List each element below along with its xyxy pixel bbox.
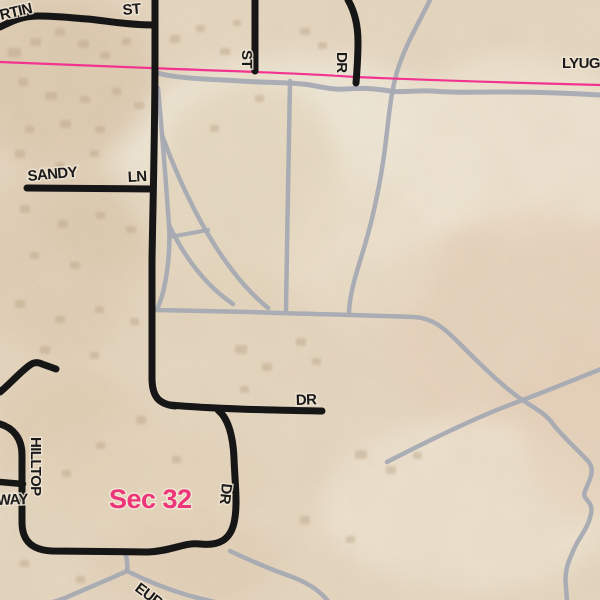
building [300, 516, 310, 524]
road-label-martin-st: ST [122, 0, 142, 19]
building [136, 416, 146, 424]
building [296, 338, 306, 346]
building [346, 536, 355, 543]
building [30, 252, 39, 259]
building [45, 92, 57, 100]
building [240, 386, 249, 393]
building [55, 28, 65, 36]
building [30, 38, 41, 46]
road-label-sandy-ln: LN [127, 168, 147, 186]
building [220, 48, 230, 55]
building [172, 456, 181, 463]
building [112, 88, 121, 95]
building [355, 450, 367, 459]
building [386, 466, 396, 474]
building [78, 40, 89, 48]
building [15, 150, 25, 158]
building [233, 20, 241, 26]
building [15, 300, 25, 308]
building [20, 560, 29, 567]
building [80, 96, 90, 103]
building [60, 120, 71, 128]
building [413, 452, 422, 459]
building [95, 306, 104, 313]
sandy-ln-road [27, 188, 152, 189]
road-label-dr-south: DR [216, 483, 235, 506]
road-label-st: ST [238, 50, 255, 68]
building [130, 318, 139, 325]
building [76, 576, 85, 583]
building [196, 25, 205, 32]
building [96, 442, 105, 449]
building [122, 38, 131, 45]
building [70, 262, 80, 269]
road-label-dr-east: DR [296, 391, 318, 409]
building [8, 48, 21, 57]
building [55, 316, 65, 323]
building [18, 78, 28, 86]
aerial-map-canvas: RTINSTSTDRLYUGOSANDYLNDRHILLTOPWAYDREURE… [0, 0, 600, 600]
building [170, 35, 180, 43]
building [58, 220, 68, 228]
building [235, 345, 247, 354]
building [255, 95, 264, 102]
building [318, 42, 327, 49]
road-label-dr-north: DR [333, 52, 350, 73]
building [312, 358, 321, 365]
building [300, 28, 310, 35]
road-label-lyugo: LYUGO [562, 55, 600, 72]
building [62, 470, 71, 477]
road-label-way: WAY [0, 491, 29, 509]
building [20, 205, 30, 213]
building [126, 226, 136, 233]
building [25, 126, 34, 133]
building [100, 52, 110, 59]
building [262, 363, 272, 371]
building [134, 102, 144, 109]
way-stub-road [0, 482, 23, 484]
road-label-hilltop: HILLTOP [27, 437, 44, 496]
building [96, 212, 105, 219]
building [90, 352, 99, 359]
building [210, 125, 219, 132]
building [90, 150, 99, 157]
section-label-sec32: Sec 32 [109, 484, 192, 514]
building [95, 126, 105, 133]
map-viewport[interactable]: RTINSTSTDRLYUGOSANDYLNDRHILLTOPWAYDREURE… [0, 0, 600, 600]
building [40, 346, 50, 354]
